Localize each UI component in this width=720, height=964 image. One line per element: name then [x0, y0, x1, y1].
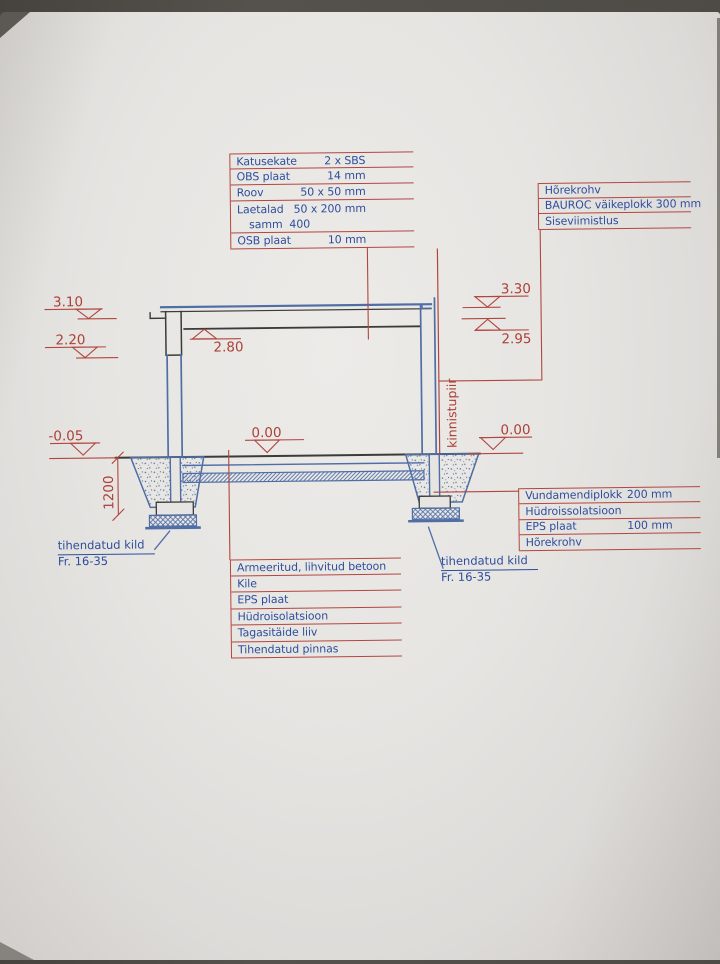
property-boundary-line: [437, 249, 439, 454]
left-wall: [166, 312, 183, 458]
layer-label: Tihendatud pinnas: [238, 642, 339, 656]
wall-layers-block: Hõrekrohv BAUROC väikeplokk 300 mm Sisev…: [538, 181, 692, 229]
layer-label: EPS plaat: [237, 593, 288, 607]
layer-label: Kile: [237, 577, 257, 590]
level-mark-2-95: [462, 318, 528, 331]
layer-label: Hõrekrohv: [526, 536, 582, 550]
layer-label: Armeeritud, lihvitud betoon: [237, 559, 386, 574]
layer-value: 50 x 50 mm: [300, 185, 366, 199]
roof-layers-block: Katusekate2 x SBS OBS plaat14 mm Roov50 …: [229, 151, 414, 249]
section-drawing: 3.10 2.20 3.30 2.95 2.80 -0.05 0.00 0.00…: [0, 0, 720, 964]
gravel-pad: [149, 515, 196, 527]
level-mark-2-80: [190, 329, 240, 339]
layer-label: BAUROC väikeplokk 300 mm: [545, 197, 701, 212]
layer-row: OSB plaat10 mm: [231, 231, 414, 249]
layer-value: 2 x SBS: [324, 153, 365, 166]
level-mark-minus-0-05: [50, 443, 116, 459]
layer-value: 10 mm: [328, 233, 367, 246]
layer-row: Hõrekrohv: [520, 534, 701, 552]
roof: [150, 304, 431, 329]
level-value: 3.10: [53, 294, 83, 310]
level-value: 0.00: [500, 422, 530, 438]
level-mark-0-00-floor: [246, 440, 304, 453]
annotations: [44, 230, 544, 562]
level-value: 3.30: [501, 281, 531, 297]
gravel-note-right: tihendatud kild Fr. 16-35: [441, 554, 538, 584]
layer-label: Hõrekrohv: [545, 184, 601, 198]
layer-row: Tagasitäide liiv: [232, 624, 402, 642]
footing-block: [419, 496, 450, 508]
drawing-sheet: 3.10 2.20 3.30 2.95 2.80 -0.05 0.00 0.00…: [0, 0, 720, 964]
layer-row: Kile: [231, 574, 401, 592]
layer-label: Tagasitäide liiv: [238, 626, 318, 640]
layer-row: Armeeritud, lihvitud betoon: [231, 558, 401, 576]
layer-value: 200 mm: [627, 488, 672, 502]
layer-label: Hüdroisolatsioon: [237, 609, 328, 623]
level-value: 0.00: [251, 425, 281, 441]
gravel-pad: [412, 508, 459, 520]
layer-value: 14 mm: [327, 169, 366, 182]
property-boundary-label: kinnistupiir: [444, 378, 460, 448]
layer-label: Katusekate: [236, 154, 297, 168]
layer-label: Roov: [237, 186, 264, 199]
layer-label: Vundamendiplokk: [525, 488, 622, 502]
level-value: 2.20: [55, 332, 85, 348]
layer-value: 100 mm: [627, 519, 672, 533]
layer-row: Hüdroisolatsioon: [231, 607, 401, 625]
layer-value: 50 x 200 mm: [294, 201, 366, 215]
layer-row: Tihendatud pinnas: [232, 640, 402, 658]
level-mark-3-30: [463, 296, 528, 308]
layer-label: Laetalad: [237, 202, 284, 216]
layer-label: OBS plaat: [236, 170, 290, 184]
level-mark-2-20: [45, 347, 117, 359]
right-foundation: [406, 454, 480, 522]
layer-label: samm 400: [237, 218, 310, 232]
dimension-value: 1200: [101, 475, 117, 510]
layer-label: Hüdroissolatsioon: [525, 504, 621, 518]
right-wall: [420, 298, 436, 454]
eave-fascia: [150, 313, 166, 319]
left-foundation: [131, 457, 205, 529]
gravel-note-line2: Fr. 16-35: [441, 569, 491, 584]
photo-of-drawing: { "blocks": { "roof": { "rows": [ {"labe…: [0, 0, 720, 960]
layer-label: EPS plaat: [525, 520, 576, 534]
layer-row: EPS plaat: [231, 591, 401, 609]
floor-layers-block: Armeeritud, lihvitud betoon Kile EPS pla…: [230, 558, 402, 659]
level-value: 2.80: [213, 339, 243, 355]
gravel-note-line2: Fr. 16-35: [58, 553, 108, 568]
building-section: [114, 298, 481, 572]
level-value: 2.95: [501, 331, 531, 347]
layer-label: OSB plaat: [237, 234, 291, 248]
level-mark-0-00-right: [468, 437, 532, 454]
layer-row: BAUROC väikeplokk 300 mm: [539, 197, 691, 214]
floor-slab: [183, 463, 424, 483]
footing-block: [156, 502, 193, 515]
layer-row: Siseviimistlus: [539, 212, 691, 229]
layer-row: Hõrekrohv: [539, 181, 691, 198]
foundation-layers-block: Vundamendiplokk200 mm Hüdroissolatsioon …: [518, 486, 701, 551]
gravel-note-left: tihendatud kild Fr. 16-35: [58, 538, 155, 568]
leader-lines: [226, 230, 544, 560]
layer-label: Siseviimistlus: [545, 214, 618, 228]
level-value: -0.05: [48, 428, 83, 444]
